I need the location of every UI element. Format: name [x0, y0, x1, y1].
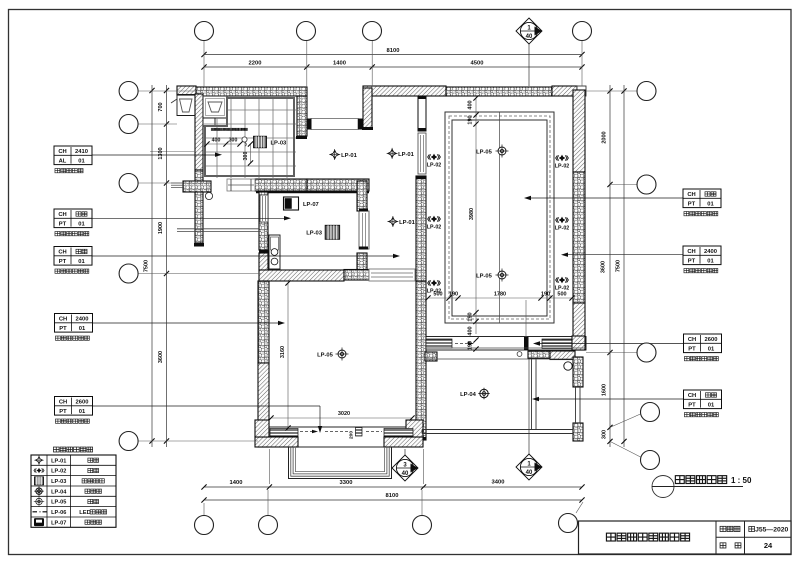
- svg-text:3300: 3300: [340, 480, 353, 486]
- svg-text:40: 40: [526, 34, 533, 40]
- svg-text:3020: 3020: [338, 411, 350, 417]
- svg-text:1900: 1900: [158, 222, 164, 234]
- svg-text:2000: 2000: [602, 131, 608, 143]
- svg-text:190: 190: [449, 292, 458, 298]
- svg-text:7500: 7500: [616, 260, 622, 272]
- svg-text:PT: PT: [688, 201, 696, 207]
- svg-text:LP-03: LP-03: [271, 141, 288, 147]
- svg-text:01: 01: [707, 258, 714, 264]
- svg-text:LP-06: LP-06: [51, 510, 66, 516]
- svg-text:40: 40: [526, 470, 533, 476]
- svg-text:40: 40: [402, 471, 409, 477]
- svg-text:PT: PT: [59, 326, 67, 332]
- svg-text:1780: 1780: [494, 292, 506, 298]
- svg-text:2400: 2400: [704, 249, 717, 255]
- svg-text:LP-02: LP-02: [555, 226, 569, 232]
- svg-text:LP-01: LP-01: [341, 153, 358, 159]
- svg-text:01: 01: [708, 346, 715, 352]
- svg-text:LP-01: LP-01: [399, 220, 416, 226]
- svg-text:LP-04: LP-04: [460, 392, 477, 398]
- svg-text:3400: 3400: [492, 480, 505, 486]
- svg-text:LP-02: LP-02: [427, 289, 441, 295]
- svg-text:PT: PT: [688, 346, 696, 352]
- svg-text:AL: AL: [59, 158, 67, 164]
- svg-text:PT: PT: [59, 259, 67, 265]
- svg-text:300: 300: [243, 152, 249, 161]
- svg-text:3980: 3980: [469, 208, 475, 220]
- svg-text:CH: CH: [58, 212, 66, 218]
- svg-text:190: 190: [468, 312, 474, 321]
- svg-text:01: 01: [78, 158, 85, 164]
- svg-text:700: 700: [158, 102, 164, 111]
- svg-text:01: 01: [78, 259, 85, 265]
- svg-text:PT: PT: [59, 409, 67, 415]
- svg-text:400: 400: [468, 326, 474, 335]
- svg-text:3600: 3600: [601, 261, 607, 273]
- svg-text:24: 24: [764, 541, 773, 550]
- svg-text:LP-05: LP-05: [51, 500, 66, 506]
- svg-text:LP-02: LP-02: [427, 163, 441, 169]
- svg-text:LP-03: LP-03: [306, 231, 323, 237]
- svg-text:2400: 2400: [76, 317, 89, 323]
- svg-text:1600: 1600: [602, 384, 608, 396]
- svg-text:8100: 8100: [386, 493, 399, 499]
- svg-text:J55—2020: J55—2020: [755, 527, 788, 534]
- svg-text:LP-02: LP-02: [427, 225, 441, 231]
- svg-text:7500: 7500: [144, 260, 150, 272]
- svg-text:PT: PT: [688, 402, 696, 408]
- svg-text:400: 400: [212, 138, 221, 144]
- svg-text:2600: 2600: [705, 337, 718, 343]
- svg-text:LP-04: LP-04: [51, 489, 67, 495]
- svg-text:CH: CH: [59, 317, 67, 323]
- svg-text:LP-07: LP-07: [51, 520, 66, 526]
- svg-text:2410: 2410: [75, 149, 88, 155]
- svg-text:LP-05: LP-05: [317, 353, 334, 359]
- svg-text:CH: CH: [58, 250, 66, 256]
- svg-text:2600: 2600: [76, 400, 89, 406]
- svg-text:3160: 3160: [280, 346, 286, 358]
- svg-text:LED: LED: [79, 510, 91, 516]
- svg-text:CH: CH: [58, 149, 66, 155]
- svg-text:CH: CH: [59, 400, 67, 406]
- svg-text:LP-01: LP-01: [51, 458, 66, 464]
- svg-text:400: 400: [468, 100, 474, 109]
- svg-text:4500: 4500: [471, 61, 484, 67]
- svg-text:190: 190: [468, 341, 474, 350]
- svg-text:200: 200: [349, 431, 355, 439]
- svg-text:01: 01: [78, 221, 85, 227]
- svg-text:PT: PT: [688, 258, 696, 264]
- svg-text:LP-05: LP-05: [476, 274, 493, 280]
- svg-text:190: 190: [468, 115, 474, 124]
- svg-text:CH: CH: [687, 249, 695, 255]
- svg-text:LP-05: LP-05: [476, 150, 493, 156]
- svg-text:1400: 1400: [333, 61, 346, 67]
- svg-text:1300: 1300: [158, 147, 164, 159]
- svg-text:LP-01: LP-01: [398, 152, 415, 158]
- svg-text:300: 300: [229, 138, 238, 144]
- svg-text:1400: 1400: [230, 480, 243, 486]
- svg-text:1 : 50: 1 : 50: [731, 476, 752, 485]
- svg-text:2200: 2200: [249, 61, 262, 67]
- svg-text:190: 190: [541, 292, 550, 298]
- svg-text:LP-02: LP-02: [51, 469, 66, 475]
- svg-text:LP-03: LP-03: [51, 479, 66, 485]
- svg-text:01: 01: [708, 402, 715, 408]
- svg-text:PT: PT: [59, 221, 67, 227]
- svg-text:CH: CH: [687, 192, 695, 198]
- svg-text:01: 01: [79, 326, 86, 332]
- svg-text:CH: CH: [688, 393, 696, 399]
- svg-text:LP-02: LP-02: [555, 164, 569, 170]
- svg-text:LP-02: LP-02: [555, 286, 569, 292]
- svg-text:CH: CH: [688, 337, 696, 343]
- svg-text:LP-07: LP-07: [303, 202, 319, 208]
- svg-text:500: 500: [557, 292, 566, 298]
- svg-text:01: 01: [707, 201, 714, 207]
- svg-text:01: 01: [79, 409, 86, 415]
- svg-text:8100: 8100: [387, 48, 400, 54]
- svg-text:3600: 3600: [158, 351, 164, 363]
- svg-text:300: 300: [602, 430, 608, 439]
